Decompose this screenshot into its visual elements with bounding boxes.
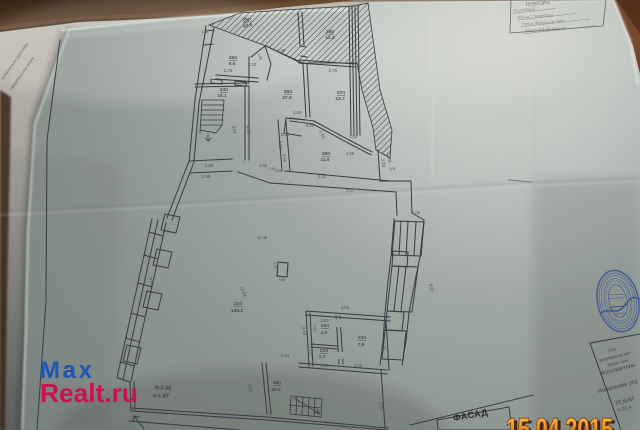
svg-text:15.04.2015: 15.04.2015 [506,413,613,430]
svg-text:Realt.ru: Realt.ru [40,378,138,408]
